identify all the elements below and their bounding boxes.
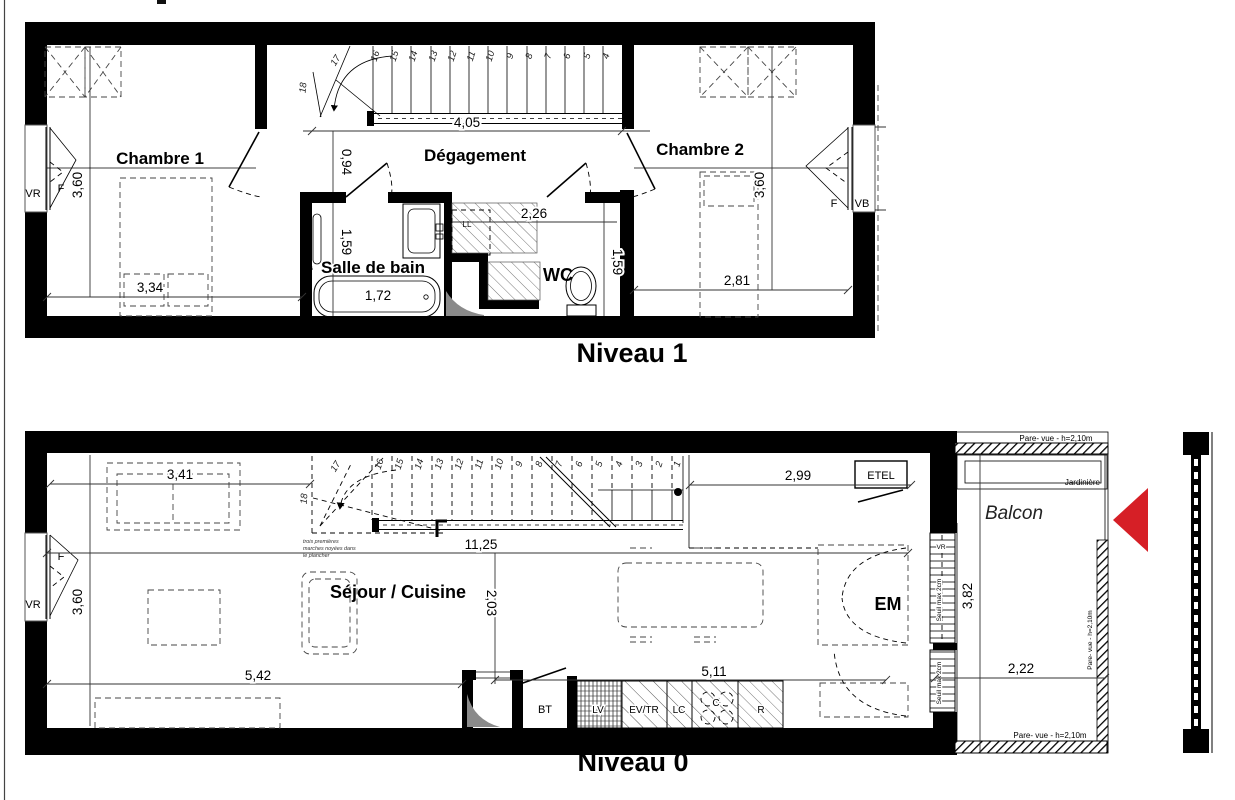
dim-wc-w: 2,26 — [521, 206, 547, 221]
chairs — [630, 548, 716, 642]
stair-start-dot — [674, 488, 682, 496]
step-number: 5 — [594, 459, 606, 468]
step-number: 12 — [446, 49, 460, 63]
dim-mid-h: 2,03 — [484, 590, 499, 616]
step-number: 12 — [453, 457, 467, 471]
stair-note-line1: trois premières — [303, 539, 339, 545]
counter-label-evtr: EV/TR — [629, 705, 658, 716]
room-label-chambre2: Chambre 2 — [656, 140, 744, 159]
dim-kitchen: 5,11 — [701, 664, 726, 679]
entrance-arrow-icon — [1113, 488, 1148, 552]
pare-vue-right-label: Pare- vue - h=2,10m — [1087, 610, 1094, 669]
wardrobe-chambre2 — [700, 47, 796, 97]
n1-stairs: 18 17 16 15 14 13 12 11 10 9 8 7 6 5 4 — [298, 46, 622, 126]
step-number: 11 — [465, 50, 479, 63]
step-number: 2 — [653, 459, 666, 469]
stair-note-line3: le plancher — [303, 553, 330, 559]
dim-ch1-w: 3,34 — [137, 280, 164, 295]
pare-vue-strip-right — [1097, 540, 1108, 753]
dim-sdb-h: 1,59 — [339, 229, 354, 255]
room-label-sdb: Salle de bain — [321, 258, 425, 277]
dim-right: 2,99 — [785, 468, 811, 483]
room-label-wc: WC — [543, 265, 573, 285]
room-label-sejour: Séjour / Cuisine — [330, 582, 466, 602]
em-label: EM — [875, 594, 902, 614]
step-number: 15 — [393, 457, 407, 471]
page-crop-mark — [157, 0, 166, 4]
step-number: 6 — [574, 459, 586, 468]
step-number: 15 — [388, 49, 402, 63]
stair-post — [372, 518, 379, 532]
pare-vue-top-label: Pare- vue - h=2,10m — [1019, 434, 1092, 443]
room-label-degagement: Dégagement — [424, 146, 526, 165]
counter-label-lc: LC — [673, 705, 686, 716]
niveau0-plan: VR F 18 17 16 15 14 — [25, 431, 1212, 777]
dining-table — [618, 548, 763, 642]
balcon-label: Balcon — [985, 503, 1043, 524]
floor-plan-page: VR F F VB 18 17 16 15 — [0, 0, 1235, 800]
seuil-note-top: Seuil max 2cm — [936, 579, 943, 622]
stair-direction-arrow — [340, 470, 396, 508]
step-number: 9 — [514, 459, 526, 468]
window-label-f-right: F — [831, 198, 838, 210]
stair-post — [367, 111, 374, 126]
bed-chambre2 — [700, 172, 758, 317]
step-number: 11 — [473, 458, 487, 471]
jardiniere-label: Jardinière — [1065, 478, 1101, 487]
dim-ch1-h: 3,60 — [70, 172, 85, 198]
window-label-vr: VR — [25, 599, 40, 611]
step-number: 8 — [524, 51, 536, 60]
towel-radiator — [313, 214, 321, 264]
window-label-f-left: F — [58, 183, 65, 195]
counter-label-c: C — [712, 698, 719, 709]
n1-doors — [229, 132, 655, 198]
dim-bath: 1,72 — [365, 288, 391, 303]
n0-stairs: 18 17 16 15 14 13 12 11 10 9 8 7 6 5 4 3… — [299, 455, 818, 559]
niveau0-title: Niveau 0 — [577, 747, 688, 777]
wardrobe-chambre1 — [45, 47, 121, 97]
stair-note-line2: marches noyées dans — [303, 546, 356, 552]
step-number: 9 — [505, 51, 517, 60]
pare-vue-strip-bottom — [955, 741, 1107, 753]
coffee-table — [148, 590, 220, 645]
bt-door-leaf — [520, 668, 566, 684]
step-number: 1 — [672, 460, 684, 468]
bathtub-faucet — [424, 295, 428, 299]
washer-label: LL — [463, 220, 472, 229]
etel-label: ETEL — [867, 470, 895, 482]
bt-label: BT — [538, 704, 552, 716]
window-label-vr-right: VR — [936, 544, 945, 551]
window-label-vb-right: VB — [855, 198, 870, 210]
dim-sofa: 3,41 — [167, 467, 193, 482]
dim-ch2-h: 3,60 — [752, 172, 767, 198]
dim-left-h: 3,60 — [70, 589, 85, 615]
etel-door-leaf — [858, 490, 903, 502]
step-number: 7 — [543, 51, 555, 60]
dim-balcony-w: 2,22 — [1008, 661, 1034, 676]
radiator-s-label: s — [310, 266, 313, 272]
step-number: 13 — [433, 457, 447, 471]
dim-ch2-w: 2,81 — [724, 273, 750, 288]
floor-plan-canvas: VR F F VB 18 17 16 15 — [0, 0, 1235, 800]
dim-total: 11,25 — [465, 537, 498, 552]
step-number: 10 — [484, 49, 498, 63]
dim-stairs: 4,05 — [454, 115, 480, 130]
bed-chambre1 — [120, 178, 212, 316]
step-number: 17 — [328, 459, 343, 474]
pare-vue-bottom-label: Pare- vue - h=2,10m — [1013, 731, 1086, 740]
counter-label-lv: LV — [592, 705, 604, 716]
step-number: 6 — [562, 51, 574, 60]
window-label-vr-left: VR — [25, 188, 40, 200]
step-number: 10 — [493, 457, 507, 471]
dim-deg: 0,94 — [339, 149, 354, 176]
counter-label-r: R — [757, 705, 764, 716]
step-number: 13 — [427, 49, 441, 63]
step-number: 5 — [582, 51, 594, 60]
step-number: 18 — [298, 81, 310, 93]
dim-balcony-h: 3,82 — [960, 583, 975, 609]
pare-vue-strip-top — [955, 443, 1108, 454]
door-leaf-chambre2 — [627, 133, 655, 189]
boundary-fence — [1183, 432, 1212, 753]
seuil-note-bottom: Seuil max 2cm — [936, 662, 943, 705]
step-number: 16 — [373, 457, 387, 471]
n0-step-numbers: 18 17 16 15 14 13 12 11 10 9 8 7 6 5 4 3… — [299, 457, 684, 505]
step-number: 14 — [413, 457, 427, 470]
stairwell-void-hatch-2 — [488, 262, 540, 300]
step-number: 4 — [601, 52, 613, 60]
step-number: 16 — [369, 49, 383, 63]
dim-wc-h: 1,59 — [610, 249, 625, 275]
door-leaf-chambre1 — [229, 132, 259, 187]
room-label-chambre1: Chambre 1 — [116, 149, 204, 168]
tv-bench — [95, 698, 280, 728]
niveau1-plan: VR F F VB 18 17 16 15 — [25, 22, 886, 368]
niveau1-title: Niveau 1 — [576, 338, 687, 368]
n1-room-labels: Chambre 1 Dégagement Salle de bain WC Ch… — [116, 140, 744, 285]
step-number: 14 — [407, 49, 421, 62]
door-leaf-wc — [547, 163, 586, 197]
n0-balcony: Pare- vue - h=2,10m Jardinière Balcon Pa… — [955, 432, 1108, 753]
step-number: 4 — [614, 460, 626, 468]
dim-bottom-left: 5,42 — [245, 668, 271, 683]
step-number: 18 — [299, 492, 311, 504]
step-number: 3 — [634, 459, 646, 468]
